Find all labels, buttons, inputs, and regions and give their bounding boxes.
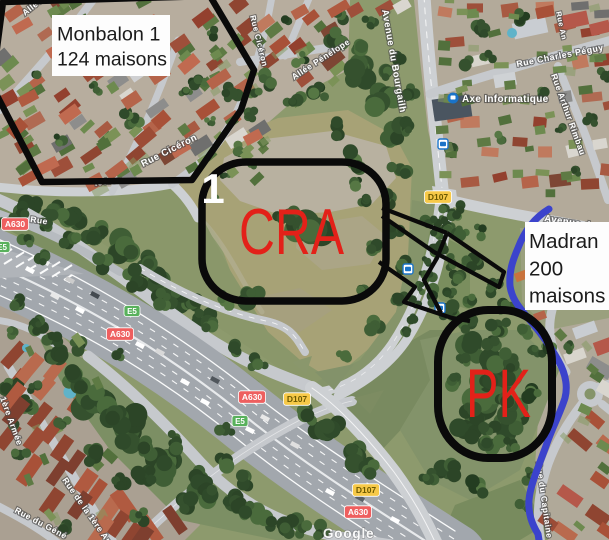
svg-text:D107: D107: [428, 192, 449, 202]
svg-text:maisons: maisons: [529, 285, 605, 308]
svg-text:D107: D107: [356, 485, 377, 495]
svg-text:A630: A630: [242, 392, 263, 402]
svg-text:A630: A630: [110, 329, 131, 339]
svg-text:E5: E5: [0, 243, 7, 252]
svg-text:E5: E5: [127, 307, 137, 316]
svg-text:Monbalon 1: Monbalon 1: [57, 24, 160, 46]
svg-text:Madran: Madran: [529, 230, 599, 253]
svg-text:200: 200: [529, 258, 563, 281]
svg-text:1: 1: [201, 165, 224, 212]
svg-text:Google: Google: [323, 526, 374, 540]
svg-text:A630: A630: [5, 219, 26, 229]
svg-text:E5: E5: [235, 417, 245, 426]
svg-text:Axe Informatique: Axe Informatique: [462, 94, 549, 105]
svg-text:D107: D107: [287, 394, 308, 404]
svg-text:A630: A630: [348, 507, 369, 517]
svg-text:124 maisons: 124 maisons: [57, 49, 167, 71]
svg-text:PK: PK: [466, 355, 531, 432]
svg-text:CRA: CRA: [239, 195, 344, 268]
